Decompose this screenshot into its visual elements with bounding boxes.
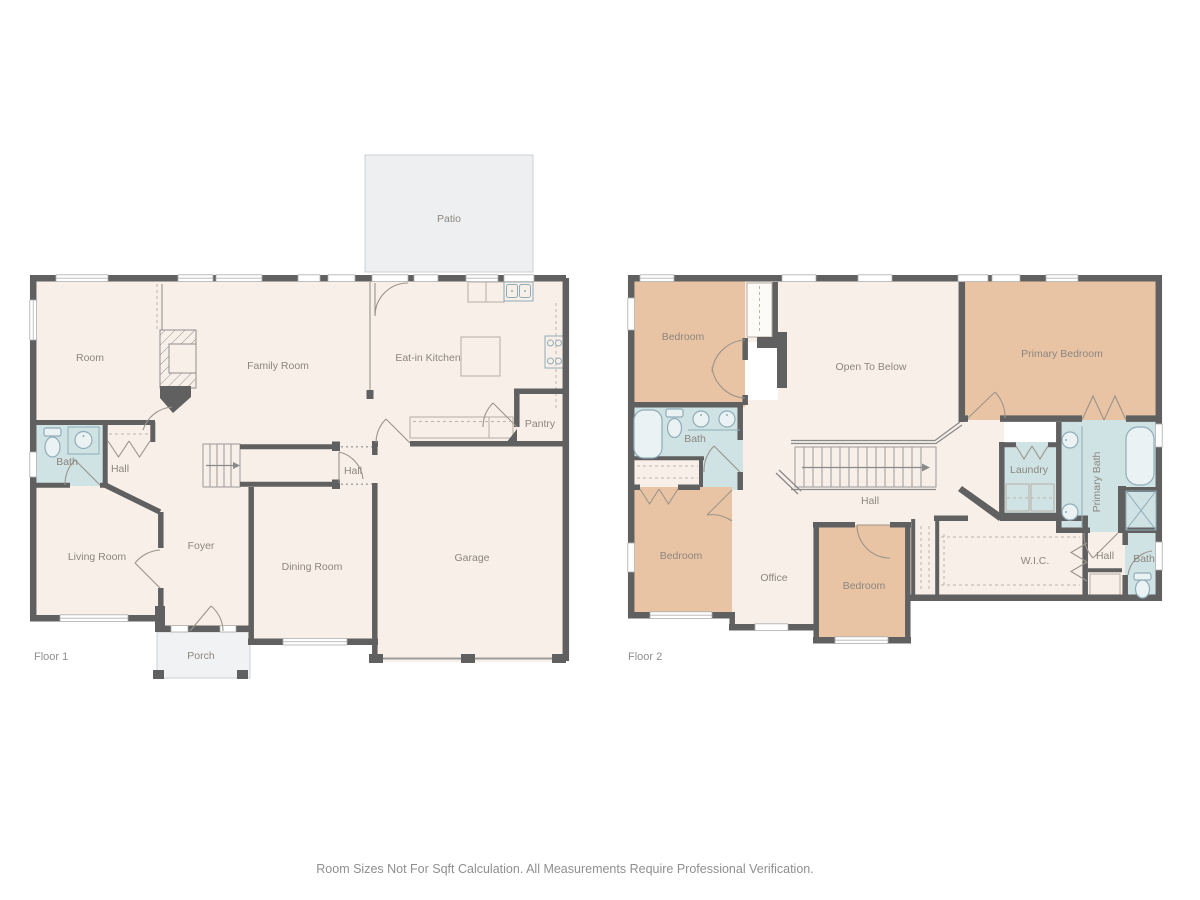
toilet-icon <box>666 409 683 438</box>
floor2-title: Floor 2 <box>628 651 662 663</box>
room-label-bedroom-bc: Bedroom <box>843 580 886 592</box>
room-label-bath-small: Bath <box>1133 553 1155 565</box>
room-label-foyer: Foyer <box>188 540 215 552</box>
room-label-room: Room <box>76 352 104 364</box>
room-label-eat-in-kitchen: Eat-in Kitchen <box>395 352 461 364</box>
room-label-garage: Garage <box>454 552 489 564</box>
sink-icon <box>1062 432 1078 448</box>
room-label-patio: Patio <box>437 213 461 225</box>
floor2-plan: Bedroom Open To Below Primary Bedroom Ba… <box>628 275 1162 663</box>
room-label-open-to-below: Open To Below <box>835 361 906 373</box>
room-label-bath1: Bath <box>56 456 78 468</box>
room-label-bedroom-tl: Bedroom <box>662 331 705 343</box>
room-label-hall-small: Hall <box>1096 550 1114 562</box>
room-label-office: Office <box>760 572 787 584</box>
room-label-porch: Porch <box>187 650 215 662</box>
disclaimer-text: Room Sizes Not For Sqft Calculation. All… <box>316 862 813 876</box>
room-label-pantry: Pantry <box>525 418 556 430</box>
room-label-family-room: Family Room <box>247 360 309 372</box>
room-label-hall-right: Hall <box>344 465 362 477</box>
room-area-office <box>732 487 816 630</box>
sink-icon <box>693 411 709 427</box>
small-bath-fixtures <box>1134 573 1151 598</box>
bathtub-icon <box>1126 427 1154 485</box>
room-label-wic: W.I.C. <box>1021 555 1050 567</box>
floorplan-canvas: Patio Room Family Room Eat-in Kitchen Pa… <box>0 0 1200 900</box>
room-label-dining-room: Dining Room <box>282 561 343 573</box>
room-label-bath2: Bath <box>684 433 706 445</box>
room-label-hall-left: Hall <box>111 463 129 475</box>
room-label-bedroom-bl: Bedroom <box>660 550 703 562</box>
floor1-title: Floor 1 <box>34 651 68 663</box>
room-label-laundry: Laundry <box>1010 464 1049 476</box>
toilet-icon <box>44 428 61 457</box>
sink-icon <box>719 411 735 427</box>
room-area-foyer <box>158 486 253 632</box>
room-label-hall2: Hall <box>861 495 879 507</box>
room-label-primary-bath: Primary Bath <box>1091 452 1103 513</box>
bathtub-icon <box>634 410 662 458</box>
floor1-plan: Patio Room Family Room Eat-in Kitchen Pa… <box>30 155 566 679</box>
floor2-room-fills <box>631 278 1160 642</box>
sink-icon <box>1062 504 1078 520</box>
room-label-primary-bedroom: Primary Bedroom <box>1021 348 1103 360</box>
room-label-living-room: Living Room <box>68 551 127 563</box>
